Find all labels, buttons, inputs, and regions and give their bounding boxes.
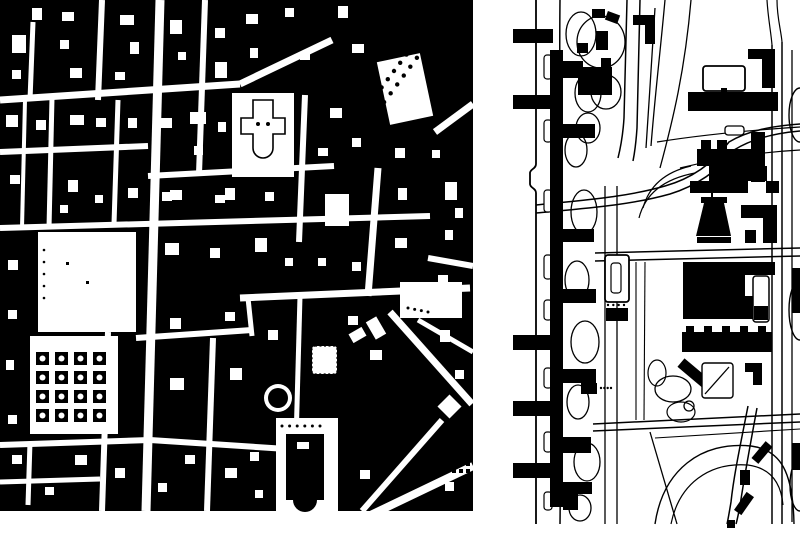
traditional-city-map-panel <box>0 0 475 533</box>
figure-ground-comparison <box>0 0 800 533</box>
modernist-plan-map-panel <box>505 0 800 533</box>
